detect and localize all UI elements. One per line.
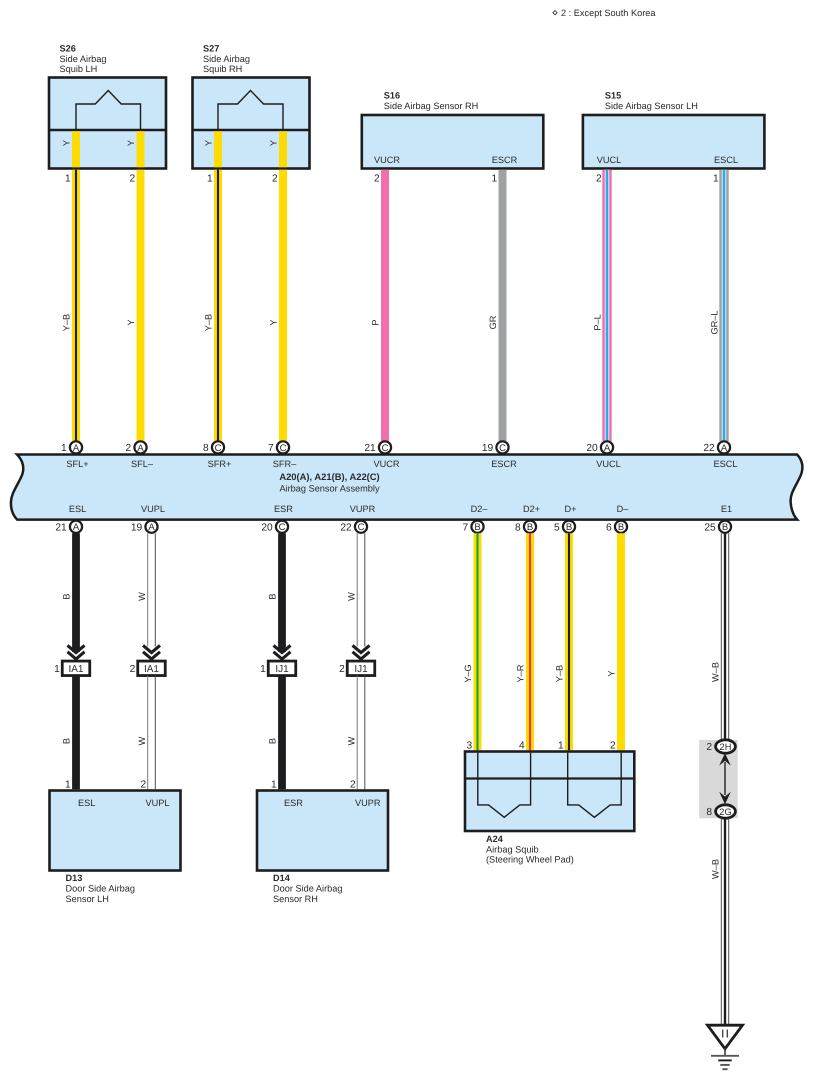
- svg-text:Airbag Squib: Airbag Squib: [486, 844, 539, 854]
- svg-text:Sensor RH: Sensor RH: [273, 894, 318, 904]
- svg-text:ESCR: ESCR: [491, 459, 517, 469]
- svg-text:B: B: [62, 593, 72, 599]
- svg-text:6: 6: [606, 522, 612, 533]
- svg-text:VUPR: VUPR: [355, 798, 381, 808]
- svg-text:Y: Y: [607, 670, 617, 676]
- svg-text:A: A: [604, 443, 611, 454]
- svg-text:B: B: [62, 738, 72, 744]
- svg-text:A20(A), A21(B), A22(C): A20(A), A21(B), A22(C): [279, 471, 379, 482]
- svg-text:SFL+: SFL+: [66, 459, 88, 469]
- svg-text:Y: Y: [62, 140, 72, 146]
- svg-text:Squib LH: Squib LH: [60, 64, 98, 74]
- svg-text:2: 2: [130, 173, 136, 184]
- svg-text:2: 2: [596, 173, 602, 184]
- svg-text:B: B: [566, 522, 572, 533]
- svg-text:4: 4: [519, 741, 525, 752]
- svg-text:19: 19: [131, 522, 143, 533]
- svg-text:Airbag Sensor Assembly: Airbag Sensor Assembly: [279, 483, 379, 493]
- svg-text:5: 5: [554, 522, 560, 533]
- svg-text:1: 1: [713, 173, 719, 184]
- svg-text:Y: Y: [204, 140, 214, 146]
- svg-text:1: 1: [65, 780, 71, 791]
- svg-text:20: 20: [261, 522, 273, 533]
- svg-text:2: 2: [130, 664, 136, 675]
- svg-text:VUPL: VUPL: [141, 504, 165, 514]
- svg-text:21: 21: [55, 522, 67, 533]
- svg-text:W: W: [137, 736, 147, 745]
- svg-text:Side Airbag Sensor LH: Side Airbag Sensor LH: [605, 101, 698, 111]
- svg-text:A24: A24: [486, 834, 504, 844]
- svg-text:Side Airbag: Side Airbag: [203, 54, 250, 64]
- svg-text:22: 22: [703, 443, 715, 454]
- svg-text:C: C: [499, 443, 506, 454]
- svg-text:A: A: [721, 443, 728, 454]
- svg-text:1: 1: [260, 664, 266, 675]
- svg-text:B: B: [268, 593, 278, 599]
- svg-text:25: 25: [704, 522, 716, 533]
- svg-text:C: C: [280, 443, 287, 454]
- svg-text:1: 1: [54, 664, 60, 675]
- svg-text:B: B: [527, 522, 533, 533]
- svg-text:22: 22: [340, 522, 352, 533]
- svg-text:Y–G: Y–G: [463, 664, 473, 682]
- svg-text:8: 8: [706, 807, 712, 818]
- svg-text:21: 21: [364, 443, 376, 454]
- svg-text:1: 1: [61, 443, 67, 454]
- svg-text:W: W: [137, 592, 147, 601]
- svg-text:P: P: [371, 319, 381, 325]
- svg-text:ESCL: ESCL: [713, 459, 737, 469]
- svg-text:2H: 2H: [720, 742, 732, 752]
- svg-text:1: 1: [271, 780, 277, 791]
- svg-text:C: C: [279, 522, 286, 533]
- svg-text:A: A: [137, 443, 144, 454]
- svg-text:B: B: [268, 738, 278, 744]
- svg-text:2: 2: [610, 741, 616, 752]
- svg-text:2: 2: [141, 780, 147, 791]
- svg-text:D+: D+: [564, 504, 576, 514]
- svg-text:Y: Y: [269, 140, 279, 146]
- svg-text:S27: S27: [203, 44, 219, 54]
- svg-text:ESCL: ESCL: [714, 155, 738, 165]
- svg-text:2: 2: [126, 443, 132, 454]
- svg-text:C: C: [358, 522, 365, 533]
- svg-text:3: 3: [467, 741, 473, 752]
- svg-text:GR–L: GR–L: [710, 310, 720, 334]
- svg-text:C: C: [382, 443, 389, 454]
- svg-text:SFR–: SFR–: [273, 459, 297, 469]
- svg-text:W–B: W–B: [711, 859, 721, 879]
- svg-text:D13: D13: [66, 873, 83, 883]
- svg-text:W: W: [347, 592, 357, 601]
- svg-text:Y–B: Y–B: [555, 665, 565, 682]
- svg-text:B: B: [474, 522, 480, 533]
- svg-text:D2+: D2+: [523, 504, 540, 514]
- svg-text:Sensor LH: Sensor LH: [66, 894, 109, 904]
- svg-text:7: 7: [463, 522, 469, 533]
- svg-text:IA1: IA1: [144, 664, 159, 675]
- svg-text:ESL: ESL: [69, 504, 86, 514]
- svg-text:VUCL: VUCL: [597, 155, 622, 165]
- svg-text:1: 1: [492, 173, 498, 184]
- svg-text:8: 8: [203, 443, 209, 454]
- svg-text:19: 19: [482, 443, 494, 454]
- svg-text:IJ1: IJ1: [354, 664, 368, 675]
- svg-text:Side Airbag: Side Airbag: [60, 54, 107, 64]
- svg-text:Y: Y: [269, 319, 279, 325]
- svg-text:P–L: P–L: [593, 314, 603, 330]
- svg-text:Squib RH: Squib RH: [203, 64, 242, 74]
- svg-text:1: 1: [558, 741, 564, 752]
- svg-text:VUPR: VUPR: [350, 504, 376, 514]
- svg-text:D2–: D2–: [471, 504, 489, 514]
- svg-text:2G: 2G: [719, 807, 731, 817]
- svg-text:E1: E1: [721, 504, 732, 514]
- svg-text:20: 20: [586, 443, 598, 454]
- svg-text:W: W: [347, 736, 357, 745]
- svg-text:Y–R: Y–R: [516, 664, 526, 682]
- svg-text:Y: Y: [126, 319, 136, 325]
- svg-text:2: 2: [350, 780, 356, 791]
- svg-text:1: 1: [207, 173, 213, 184]
- svg-text:A: A: [73, 522, 80, 533]
- svg-text:Y–B: Y–B: [204, 314, 214, 331]
- svg-text:B: B: [618, 522, 624, 533]
- svg-text:Side Airbag Sensor RH: Side Airbag Sensor RH: [384, 101, 478, 111]
- svg-text:A: A: [73, 443, 80, 454]
- svg-text:C: C: [215, 443, 222, 454]
- svg-text:S15: S15: [605, 91, 621, 101]
- svg-text:D–: D–: [617, 504, 630, 514]
- svg-text:ESL: ESL: [78, 798, 95, 808]
- svg-text:S16: S16: [384, 91, 400, 101]
- svg-text:ESR: ESR: [284, 798, 303, 808]
- svg-text:D14: D14: [273, 873, 291, 883]
- svg-text:2: 2: [339, 664, 345, 675]
- svg-text:SFR+: SFR+: [208, 459, 232, 469]
- svg-text:1: 1: [65, 173, 71, 184]
- svg-text:2: 2: [272, 173, 278, 184]
- svg-text:VUCR: VUCR: [374, 155, 400, 165]
- svg-text:VUPL: VUPL: [146, 798, 170, 808]
- svg-text:A: A: [148, 522, 155, 533]
- svg-text:(Steering Wheel Pad): (Steering Wheel Pad): [486, 855, 574, 865]
- svg-text:W–B: W–B: [711, 662, 721, 682]
- svg-text:7: 7: [268, 443, 274, 454]
- svg-text:2 : Except South Korea: 2 : Except South Korea: [561, 8, 656, 18]
- svg-text:GR: GR: [488, 315, 498, 329]
- svg-text:ESR: ESR: [274, 504, 293, 514]
- svg-text:B: B: [722, 522, 728, 533]
- svg-text:Door Side Airbag: Door Side Airbag: [66, 884, 135, 894]
- svg-text:SFL–: SFL–: [131, 459, 154, 469]
- svg-text:2: 2: [706, 742, 712, 753]
- svg-text:IJ1: IJ1: [275, 664, 289, 675]
- svg-text:VUCR: VUCR: [373, 459, 399, 469]
- svg-text:Door Side Airbag: Door Side Airbag: [273, 884, 342, 894]
- svg-text:VUCL: VUCL: [596, 459, 621, 469]
- svg-text:S26: S26: [60, 44, 76, 54]
- svg-text:ESCR: ESCR: [492, 155, 518, 165]
- svg-text:Y: Y: [126, 140, 136, 146]
- svg-text:IA1: IA1: [68, 664, 83, 675]
- svg-text:Y–B: Y–B: [62, 314, 72, 331]
- svg-text:8: 8: [515, 522, 521, 533]
- svg-text:2: 2: [374, 173, 380, 184]
